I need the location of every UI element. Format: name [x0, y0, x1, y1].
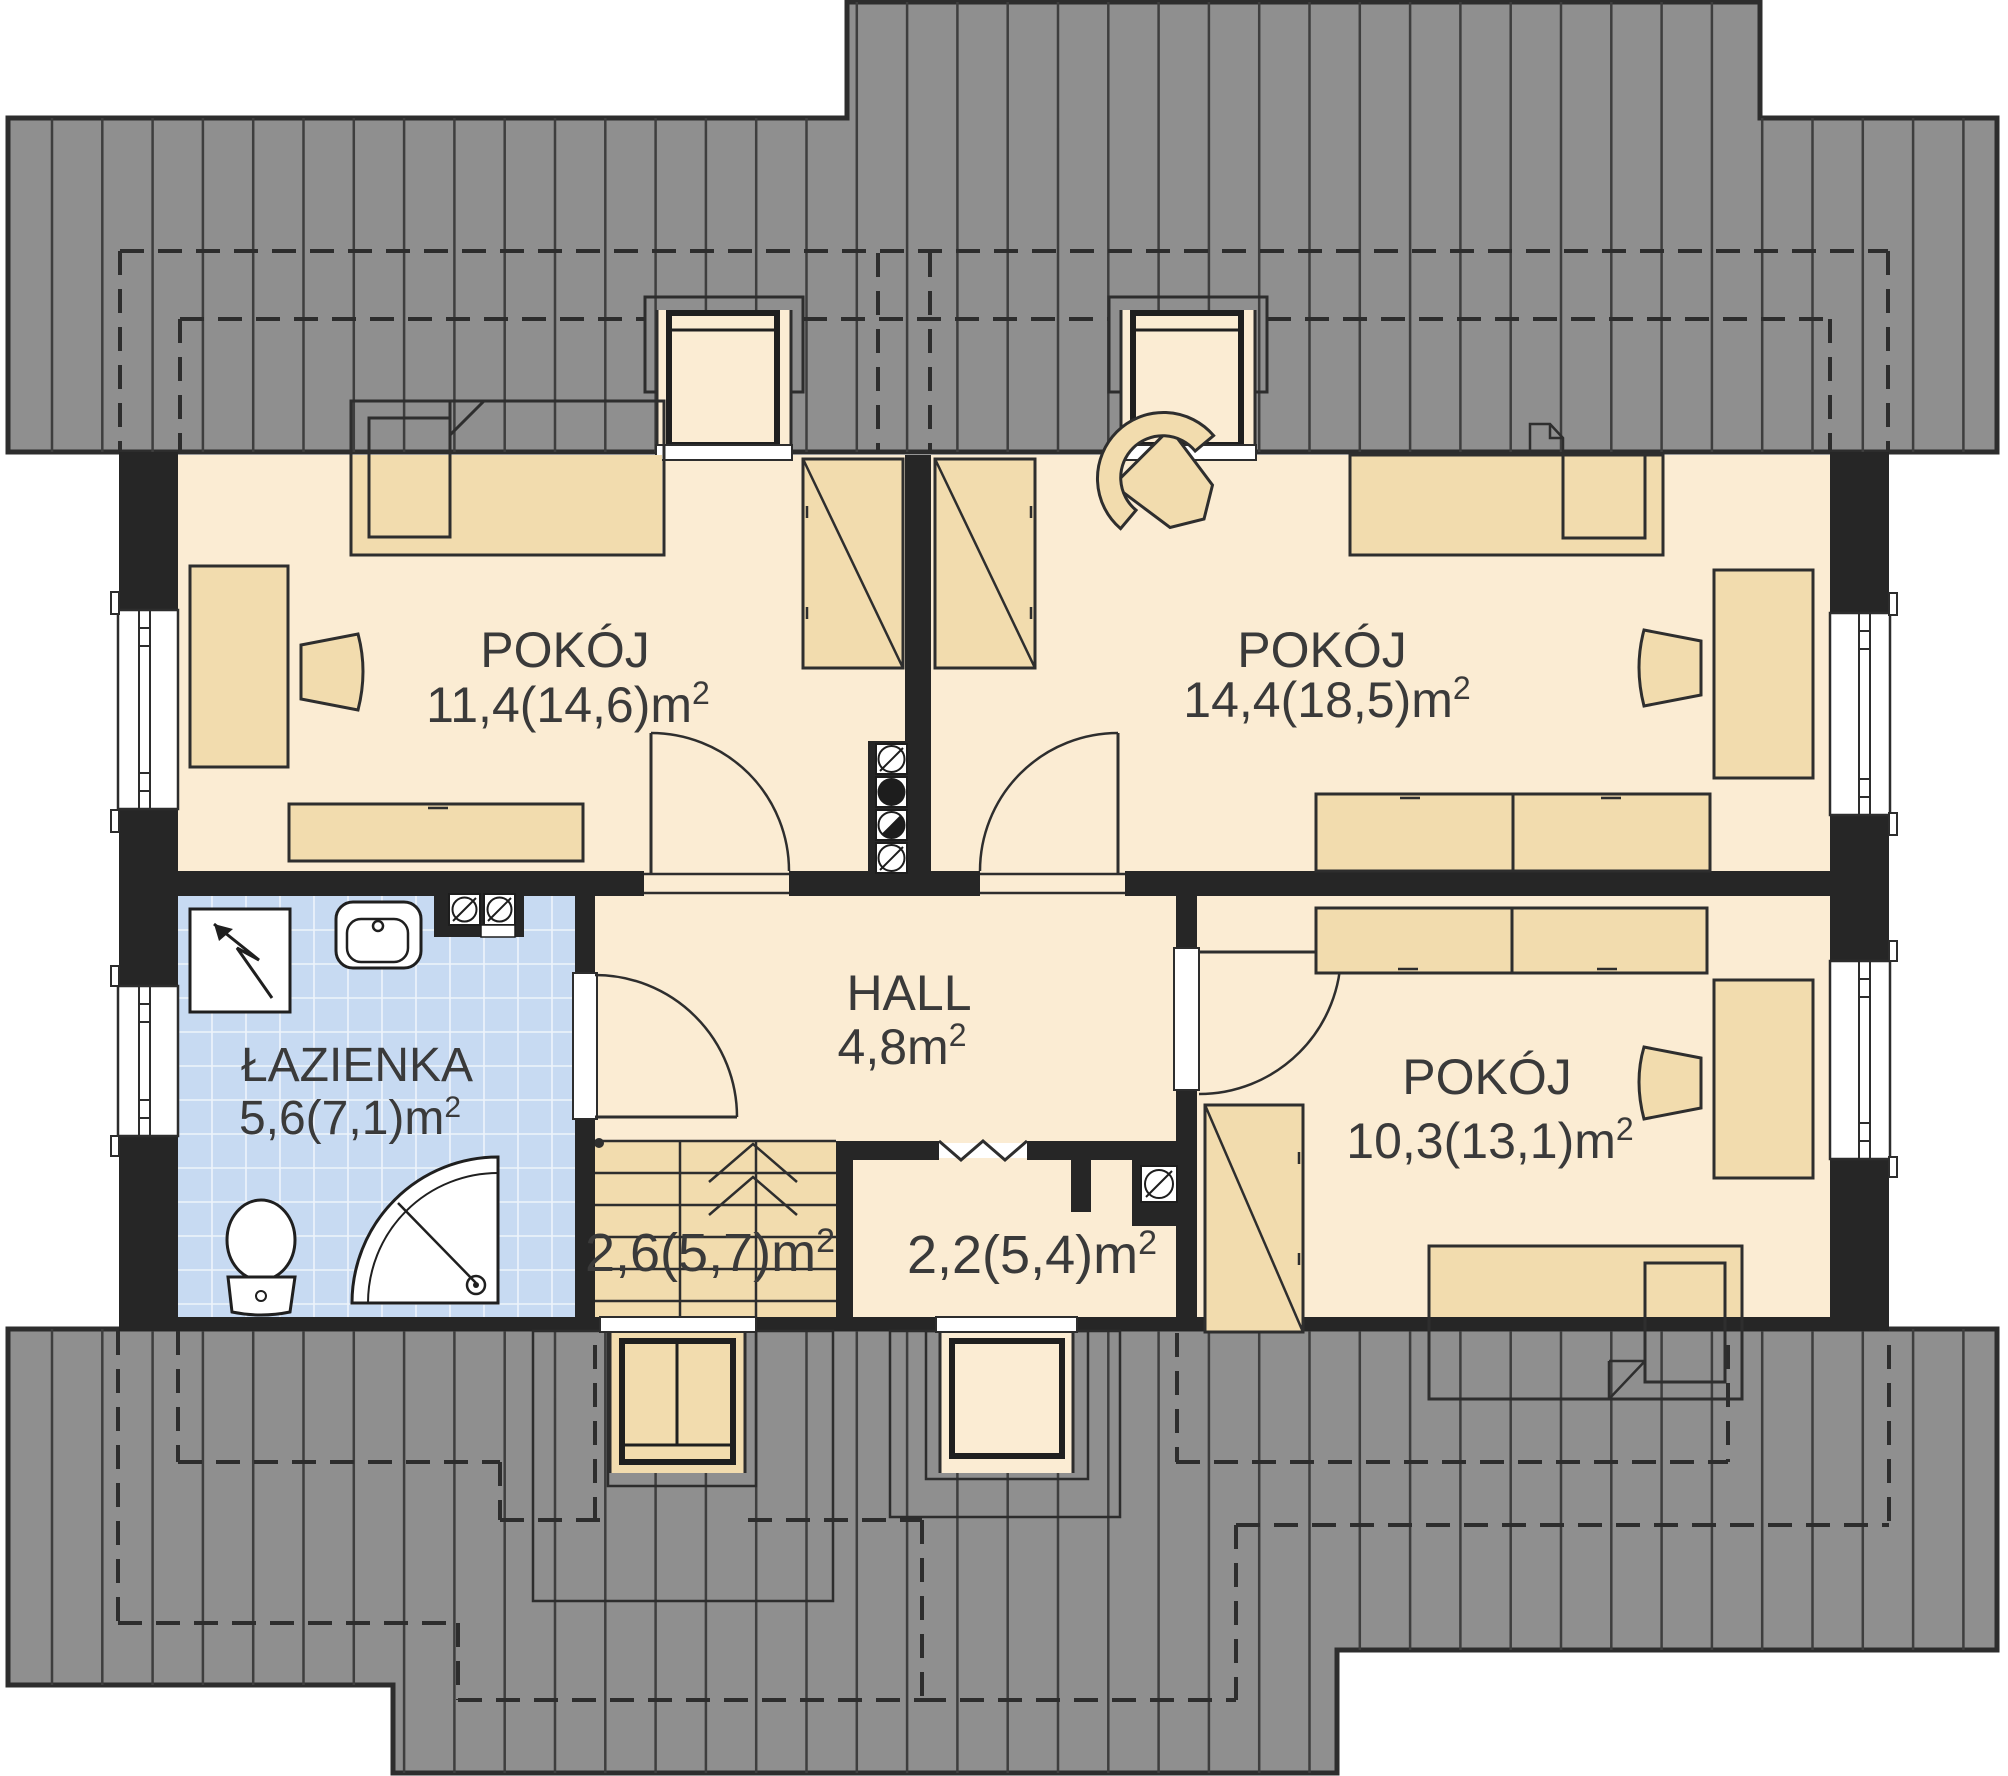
svg-text:POKÓJ: POKÓJ [1402, 1049, 1571, 1105]
svg-text:HALL: HALL [846, 965, 971, 1021]
svg-text:ŁAZIENKA: ŁAZIENKA [241, 1039, 473, 1092]
svg-text:4,8m2: 4,8m2 [838, 1017, 967, 1075]
svg-text:2,2(5,4)m2: 2,2(5,4)m2 [907, 1224, 1157, 1285]
svg-text:POKÓJ: POKÓJ [480, 622, 649, 678]
svg-text:POKÓJ: POKÓJ [1237, 622, 1406, 678]
svg-text:14,4(18,5)m2: 14,4(18,5)m2 [1183, 670, 1470, 728]
svg-text:10,3(13,1)m2: 10,3(13,1)m2 [1346, 1111, 1633, 1169]
svg-text:11,4(14,6)m2: 11,4(14,6)m2 [426, 675, 710, 733]
svg-text:5,6(7,1)m2: 5,6(7,1)m2 [239, 1091, 461, 1145]
svg-text:2,6(5,7)m2: 2,6(5,7)m2 [585, 1222, 835, 1283]
